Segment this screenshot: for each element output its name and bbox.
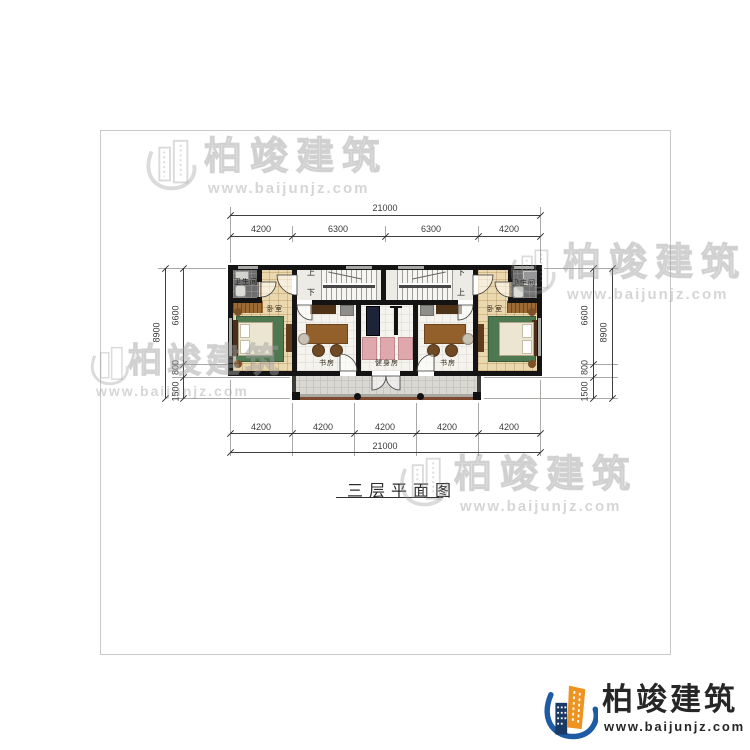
door-balcony-right (417, 354, 434, 371)
watermark-url: www.baijunjz.com (567, 287, 728, 302)
logo-url-text: www.baijunjz.com (604, 720, 745, 733)
watermark-logo-icon (140, 136, 198, 194)
watermark-brand: 柏竣建筑 (454, 456, 638, 494)
watermark: 柏竣建筑 www.baijunjz.com (505, 244, 750, 304)
watermark-logo-icon (505, 246, 557, 298)
door-balcony-left (340, 354, 357, 371)
room-label-bedroom-right: 卧室 (484, 305, 506, 314)
dim-label-right-total: 8900 (599, 313, 610, 353)
dim-line-top-total (230, 215, 540, 216)
door-bedroom-left (277, 275, 297, 295)
watermark-logo-icon (394, 454, 450, 510)
dim-label: 6600 (171, 296, 182, 336)
door-study-right (458, 305, 473, 320)
watermark: 柏竣建筑 www.baijunjz.com (140, 136, 400, 198)
dim-label: 4200 (355, 422, 415, 433)
watermark: 柏竣建筑 www.baijunjz.com (86, 342, 306, 400)
dim-label: 1500 (580, 379, 591, 405)
watermark-url: www.baijunjz.com (208, 181, 369, 196)
room-label-study-right: 书房 (436, 359, 460, 368)
dim-label: 800 (580, 355, 591, 381)
dim-label: 4200 (417, 422, 477, 433)
door-study-left (297, 305, 312, 320)
watermark-brand: 柏竣建筑 (204, 138, 388, 176)
room-label-bedroom-left: 卧室 (264, 305, 286, 314)
logo: 柏竣建筑 www.baijunjz.com (540, 676, 745, 746)
watermark-url: www.baijunjz.com (460, 499, 621, 514)
dim-label: 4200 (479, 224, 539, 235)
page: { "title": { "text": "三层平面图" }, "brand":… (0, 0, 750, 750)
watermark-url: www.baijunjz.com (96, 384, 249, 398)
dim-label-top-total: 21000 (355, 203, 415, 214)
dim-label: 4200 (479, 422, 539, 433)
dim-label: 4200 (293, 422, 353, 433)
dim-label: 4200 (231, 422, 291, 433)
door-gym-1 (372, 376, 386, 390)
dim-label: 6300 (401, 224, 461, 235)
watermark-logo-icon (86, 344, 130, 388)
door-gym-2 (386, 376, 400, 390)
room-label-study-left: 书房 (315, 359, 339, 368)
watermark-brand: 柏竣建筑 (128, 344, 284, 378)
extension-line (158, 268, 226, 269)
watermark: 柏竣建筑 www.baijunjz.com (394, 452, 644, 514)
dim-label-bottom-total: 21000 (355, 441, 415, 452)
door-bathroom-left (261, 282, 276, 297)
dim-label: 4200 (231, 224, 291, 235)
logo-icon (540, 680, 598, 742)
door-bedroom-right (473, 275, 493, 295)
room-label-bathroom-left: 卫生间 (233, 278, 259, 287)
room-label-gym: 健身房 (371, 359, 403, 368)
watermark-brand: 柏竣建筑 (563, 244, 747, 282)
dim-line-bottom-segments (230, 433, 540, 434)
dim-label: 6300 (308, 224, 368, 235)
logo-brand-text: 柏竣建筑 (602, 684, 738, 715)
